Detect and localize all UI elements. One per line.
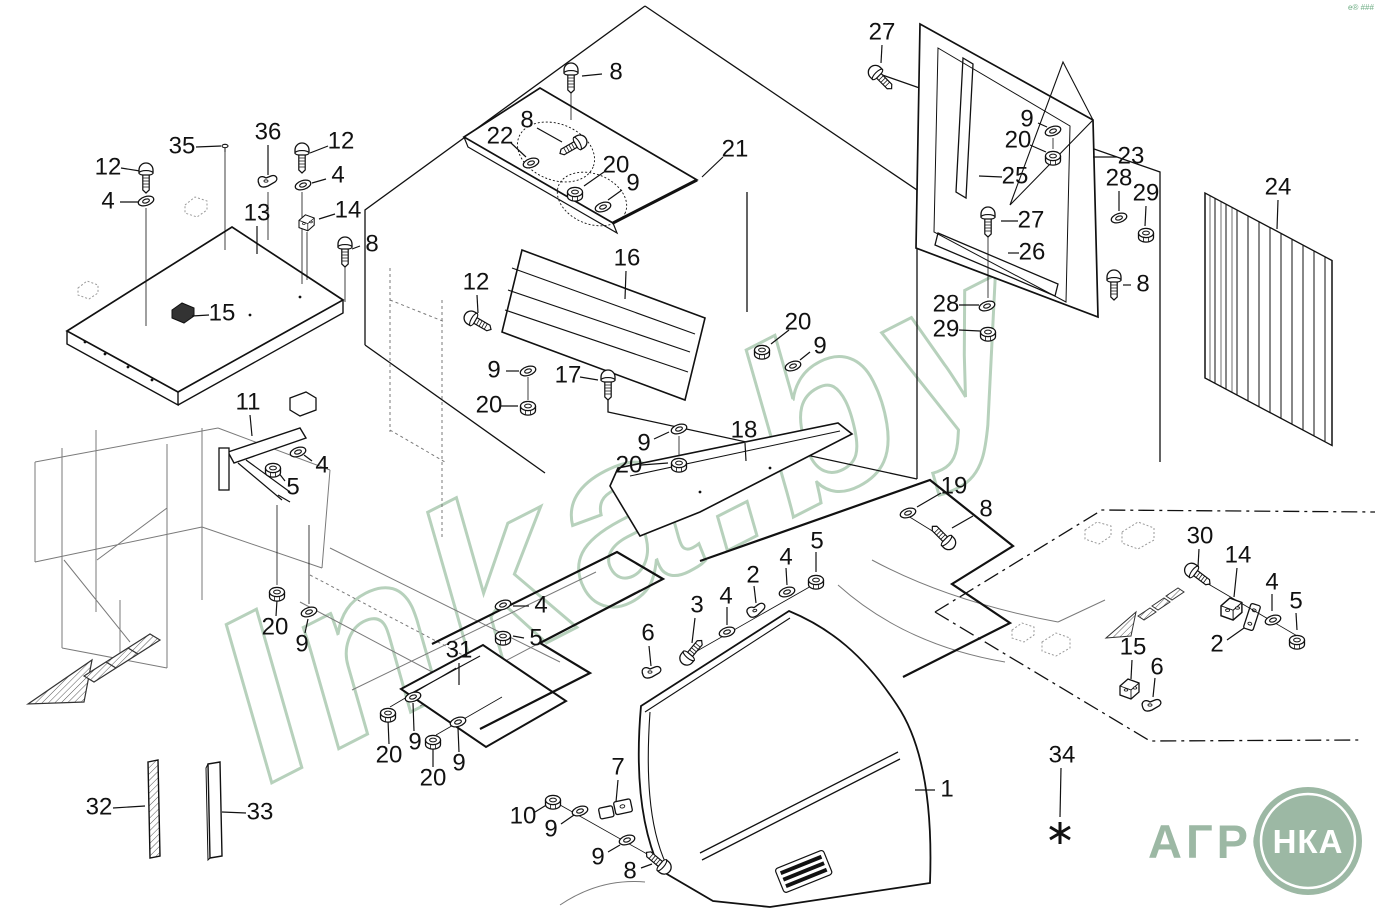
leader-line: [608, 845, 620, 852]
nut-icon: [672, 458, 687, 472]
leader-line: [196, 146, 221, 147]
washer-icon: [519, 364, 537, 377]
leader-line: [1277, 200, 1278, 229]
clip-icon: [1142, 700, 1161, 711]
part-number-label: 9: [813, 332, 826, 359]
part-number-label: 27: [869, 18, 896, 45]
agro-nka-logo: АГРО НКА: [1148, 787, 1362, 895]
bolt-icon: [564, 63, 578, 93]
part-number-label: 19: [941, 472, 968, 499]
logo-circle-word: НКА: [1273, 823, 1344, 860]
part-number-label: 7: [611, 753, 624, 780]
part-number-label: 5: [286, 473, 299, 500]
nut-icon: [568, 187, 583, 201]
part-number-label: 5: [1289, 587, 1302, 614]
washer-icon: [137, 194, 155, 207]
nut-icon: [381, 708, 396, 722]
part-number-label: 9: [408, 728, 421, 755]
nut-icon: [270, 587, 285, 601]
leader-line: [1060, 768, 1061, 817]
washer-icon: [618, 833, 636, 846]
leader-line: [121, 168, 140, 171]
bolt-icon: [1107, 270, 1121, 300]
clip-icon: [258, 176, 277, 187]
leader-line: [616, 780, 618, 802]
direction-arrow-small: [1106, 588, 1184, 638]
grille-24: [1205, 193, 1332, 446]
leader-line: [250, 415, 252, 436]
washer-icon: [571, 804, 589, 817]
part-number-label: 22: [487, 122, 514, 149]
part-number-label: 12: [328, 127, 355, 154]
part-number-label: 2: [1210, 630, 1223, 657]
part-number-label: 14: [335, 196, 362, 223]
leader-line: [1234, 568, 1237, 597]
part-number-label: 8: [979, 495, 992, 522]
part-number-label: 9: [591, 843, 604, 870]
leader-line: [113, 806, 145, 808]
washer-icon: [294, 178, 312, 191]
part-number-label: 4: [315, 451, 328, 478]
part-number-label: 12: [95, 153, 122, 180]
bracket-icon: [1221, 598, 1242, 620]
washer-icon: [1264, 613, 1282, 626]
part-number-label: 20: [262, 613, 289, 640]
latch-7-icon: [598, 799, 633, 820]
part-number-label: 35: [169, 132, 196, 159]
part-number-label: 13: [244, 199, 271, 226]
leader-line: [649, 646, 651, 666]
part-number-label: 29: [933, 315, 960, 342]
part-number-label: 26: [1019, 238, 1046, 265]
part-number-label: 28: [1106, 164, 1133, 191]
part-number-label: 8: [520, 106, 533, 133]
part-number-label: 4: [534, 591, 547, 618]
part-number-label: 34: [1049, 741, 1076, 768]
washer-icon: [289, 445, 307, 458]
part-number-label: 32: [86, 793, 113, 820]
leader-line: [310, 146, 328, 153]
washer-icon: [1110, 211, 1128, 224]
part-number-label: 4: [779, 543, 792, 570]
leader-line: [881, 45, 882, 63]
part-number-label: 33: [247, 798, 274, 825]
part-number-label: 6: [641, 619, 654, 646]
part-number-label: 18: [731, 416, 758, 443]
part-number-label: 28: [933, 290, 960, 317]
nut-icon: [981, 327, 996, 341]
leader-line: [561, 815, 574, 824]
part-number-label: 9: [487, 356, 500, 383]
nut-icon: [755, 345, 770, 359]
leader-line: [222, 812, 246, 813]
nut-icon: [1290, 635, 1305, 649]
part-number-label: 8: [609, 58, 622, 85]
leader-line: [582, 74, 602, 76]
nut-icon: [496, 631, 511, 645]
nut-icon: [546, 795, 561, 809]
part-number-label: 4: [331, 161, 344, 188]
part-number-label: 21: [722, 135, 749, 162]
leader-line: [352, 246, 360, 249]
part-number-label: 20: [785, 308, 812, 335]
nut-icon: [426, 735, 441, 749]
part-number-label: 4: [1265, 568, 1278, 595]
leader-line: [477, 295, 478, 313]
part-number-label: 9: [544, 815, 557, 842]
plate-2-icon: [1243, 603, 1261, 631]
leader-line: [1145, 206, 1146, 226]
leader-line: [641, 864, 652, 868]
direction-arrow-big: [28, 634, 160, 704]
part-number-label: 20: [1005, 126, 1032, 153]
bolt-icon: [295, 143, 309, 173]
part-number-label: 4: [101, 187, 114, 214]
leader-line: [702, 157, 723, 177]
bracket-icon: [1120, 679, 1139, 699]
part-number-label: 1: [940, 775, 953, 802]
pin-icon: [222, 144, 228, 152]
part-number-label: 15: [209, 299, 236, 326]
leader-line: [1198, 549, 1199, 567]
leader-line: [304, 455, 312, 461]
bolt-icon: [338, 237, 352, 267]
nut-icon: [521, 401, 536, 415]
bracket-icon: [299, 215, 314, 231]
leader-line: [319, 214, 335, 219]
part-number-label: 36: [255, 118, 282, 145]
part-number-label: 9: [626, 169, 639, 196]
nut-icon: [1139, 228, 1154, 242]
part-number-label: 20: [420, 764, 447, 791]
clip-icon: [746, 602, 767, 618]
part-number-label: 25: [1002, 162, 1029, 189]
part-number-label: 12: [463, 268, 490, 295]
parts-diagram-page: Inka.by e® ###: [0, 0, 1379, 918]
part-number-label: 14: [1225, 541, 1252, 568]
part-number-label: 20: [376, 741, 403, 768]
nut-icon: [1046, 151, 1061, 165]
bolt-icon: [139, 163, 153, 193]
part-number-label: 9: [452, 749, 465, 776]
part-number-label: 15: [1120, 633, 1147, 660]
part-number-label: 29: [1133, 179, 1160, 206]
part-number-label: 20: [616, 451, 643, 478]
part-number-label: 10: [510, 802, 537, 829]
part-number-label: 27: [1018, 206, 1045, 233]
part-number-label: 8: [365, 230, 378, 257]
leader-line: [1296, 613, 1297, 630]
part-number-label: 20: [476, 391, 503, 418]
part-number-label: 2: [746, 561, 759, 588]
leader-line: [312, 179, 326, 183]
part-number-label: 6: [1150, 653, 1163, 680]
part-number-label: 5: [810, 527, 823, 554]
part-number-label: 8: [623, 857, 636, 884]
part-number-label: 8: [1136, 270, 1149, 297]
clip-icon: [642, 667, 661, 678]
part-number-label: 17: [555, 361, 582, 388]
nut-icon: [266, 463, 281, 477]
part-number-label: 31: [446, 636, 473, 663]
strip-33: [206, 762, 222, 860]
part-number-label: 5: [529, 624, 542, 651]
part-number-label: 4: [719, 582, 732, 609]
part-number-label: 24: [1265, 173, 1292, 200]
leader-line: [1153, 678, 1155, 697]
bolt-icon: [927, 521, 958, 552]
leader-line: [1131, 660, 1132, 679]
part-number-label: 16: [614, 244, 641, 271]
strip-32: [148, 760, 160, 858]
asterisk-34: [1050, 822, 1070, 844]
part-number-label: 30: [1187, 522, 1214, 549]
part-number-label: 11: [236, 388, 261, 415]
nut-icon: [809, 575, 824, 589]
exploded-parts-diagram: Inka.by e® ###: [0, 0, 1379, 918]
part-number-label: 3: [690, 591, 703, 618]
leader-line: [1227, 628, 1244, 640]
leader-line: [952, 516, 973, 528]
washer-icon: [718, 625, 736, 638]
panel-21-top: [464, 88, 697, 236]
corner-mark: e® ###: [1348, 3, 1374, 12]
part-number-label: 9: [295, 630, 308, 657]
